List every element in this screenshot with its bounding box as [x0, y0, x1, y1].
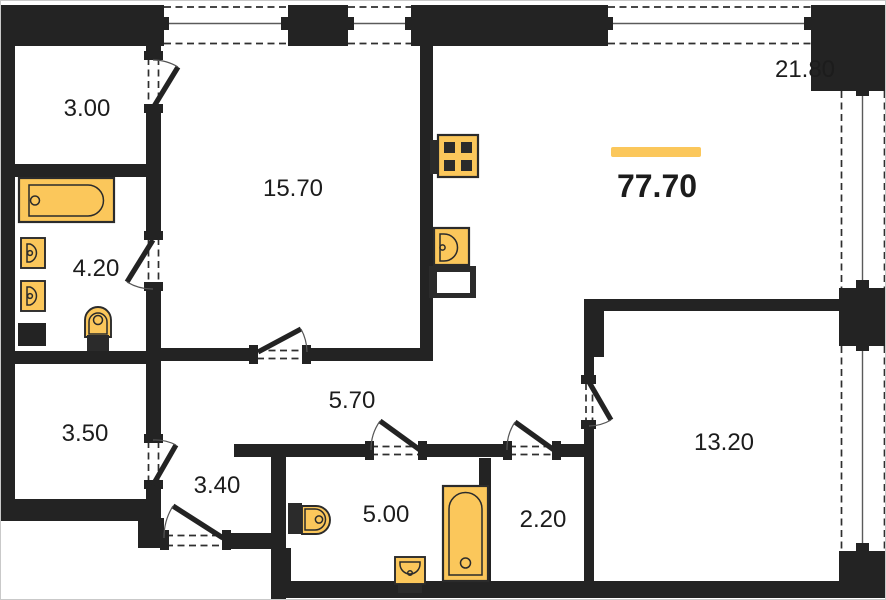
sink-icon	[21, 238, 45, 268]
room-label-storage-top: 3.00	[64, 95, 111, 122]
window-top-2	[345, 7, 414, 44]
window-right-2	[842, 342, 885, 552]
wall	[15, 164, 146, 177]
room-label-wardrobe: 2.20	[520, 506, 567, 533]
wall	[584, 299, 844, 311]
wall	[288, 5, 348, 46]
room-label-storage-bottom: 3.50	[62, 420, 109, 447]
floor-plan-canvas: 3.00 15.70 21.80 4.20 3.50 5.70 3.40 5.0…	[0, 0, 886, 600]
door-entrance	[160, 506, 231, 550]
room-label-bedroom-second: 13.20	[694, 429, 754, 456]
window-right-1	[842, 87, 885, 289]
wall	[271, 454, 286, 599]
door-bedroom-second	[581, 375, 611, 429]
door-bathroom-second	[365, 421, 427, 460]
wall	[271, 581, 886, 598]
door-wardrobe	[503, 422, 561, 460]
door-storage-bottom	[144, 434, 176, 489]
wall	[411, 5, 608, 46]
windows	[160, 7, 885, 552]
wall	[146, 487, 161, 521]
washbasin-icon	[395, 557, 425, 593]
room-label-hallway: 5.70	[329, 387, 376, 414]
wall	[228, 533, 271, 549]
bathtub-icon	[19, 178, 114, 222]
wall	[307, 348, 433, 361]
floor-plan: 3.00 15.70 21.80 4.20 3.50 5.70 3.40 5.0…	[1, 1, 886, 600]
toilet-icon	[288, 503, 330, 534]
wall	[557, 444, 584, 457]
room-label-corridor: 3.40	[194, 472, 241, 499]
wall	[1, 5, 164, 46]
room-label-bedroom: 15.70	[263, 175, 323, 202]
duct-shaft	[429, 266, 476, 298]
bathtub-icon	[443, 486, 488, 581]
wall	[1, 499, 148, 521]
room-label-bathroom-main: 4.20	[73, 255, 120, 282]
wall	[420, 46, 433, 361]
kitchen-sink-icon	[434, 228, 469, 265]
room-label-living: 21.80	[775, 56, 835, 83]
sink-icon	[21, 281, 45, 311]
door-bedroom	[249, 329, 311, 364]
total-area-bar	[611, 147, 701, 157]
wall	[584, 428, 594, 583]
duct-block	[18, 323, 46, 346]
wall	[15, 351, 161, 364]
door-bathroom-main	[127, 231, 163, 291]
wall	[146, 111, 161, 236]
door-storage-top	[144, 51, 178, 113]
wall	[234, 444, 368, 457]
wall	[584, 299, 604, 357]
wall	[1, 5, 15, 521]
wall	[839, 288, 886, 346]
total-area-label: 77.70	[617, 168, 697, 204]
room-label-bathroom-second: 5.00	[363, 501, 410, 528]
wall	[146, 291, 161, 439]
window-top-3	[604, 7, 813, 44]
toilet-icon	[85, 307, 111, 351]
wall	[146, 348, 254, 361]
stove-icon	[430, 135, 478, 177]
window-top-1	[160, 7, 290, 44]
wall	[423, 444, 507, 457]
